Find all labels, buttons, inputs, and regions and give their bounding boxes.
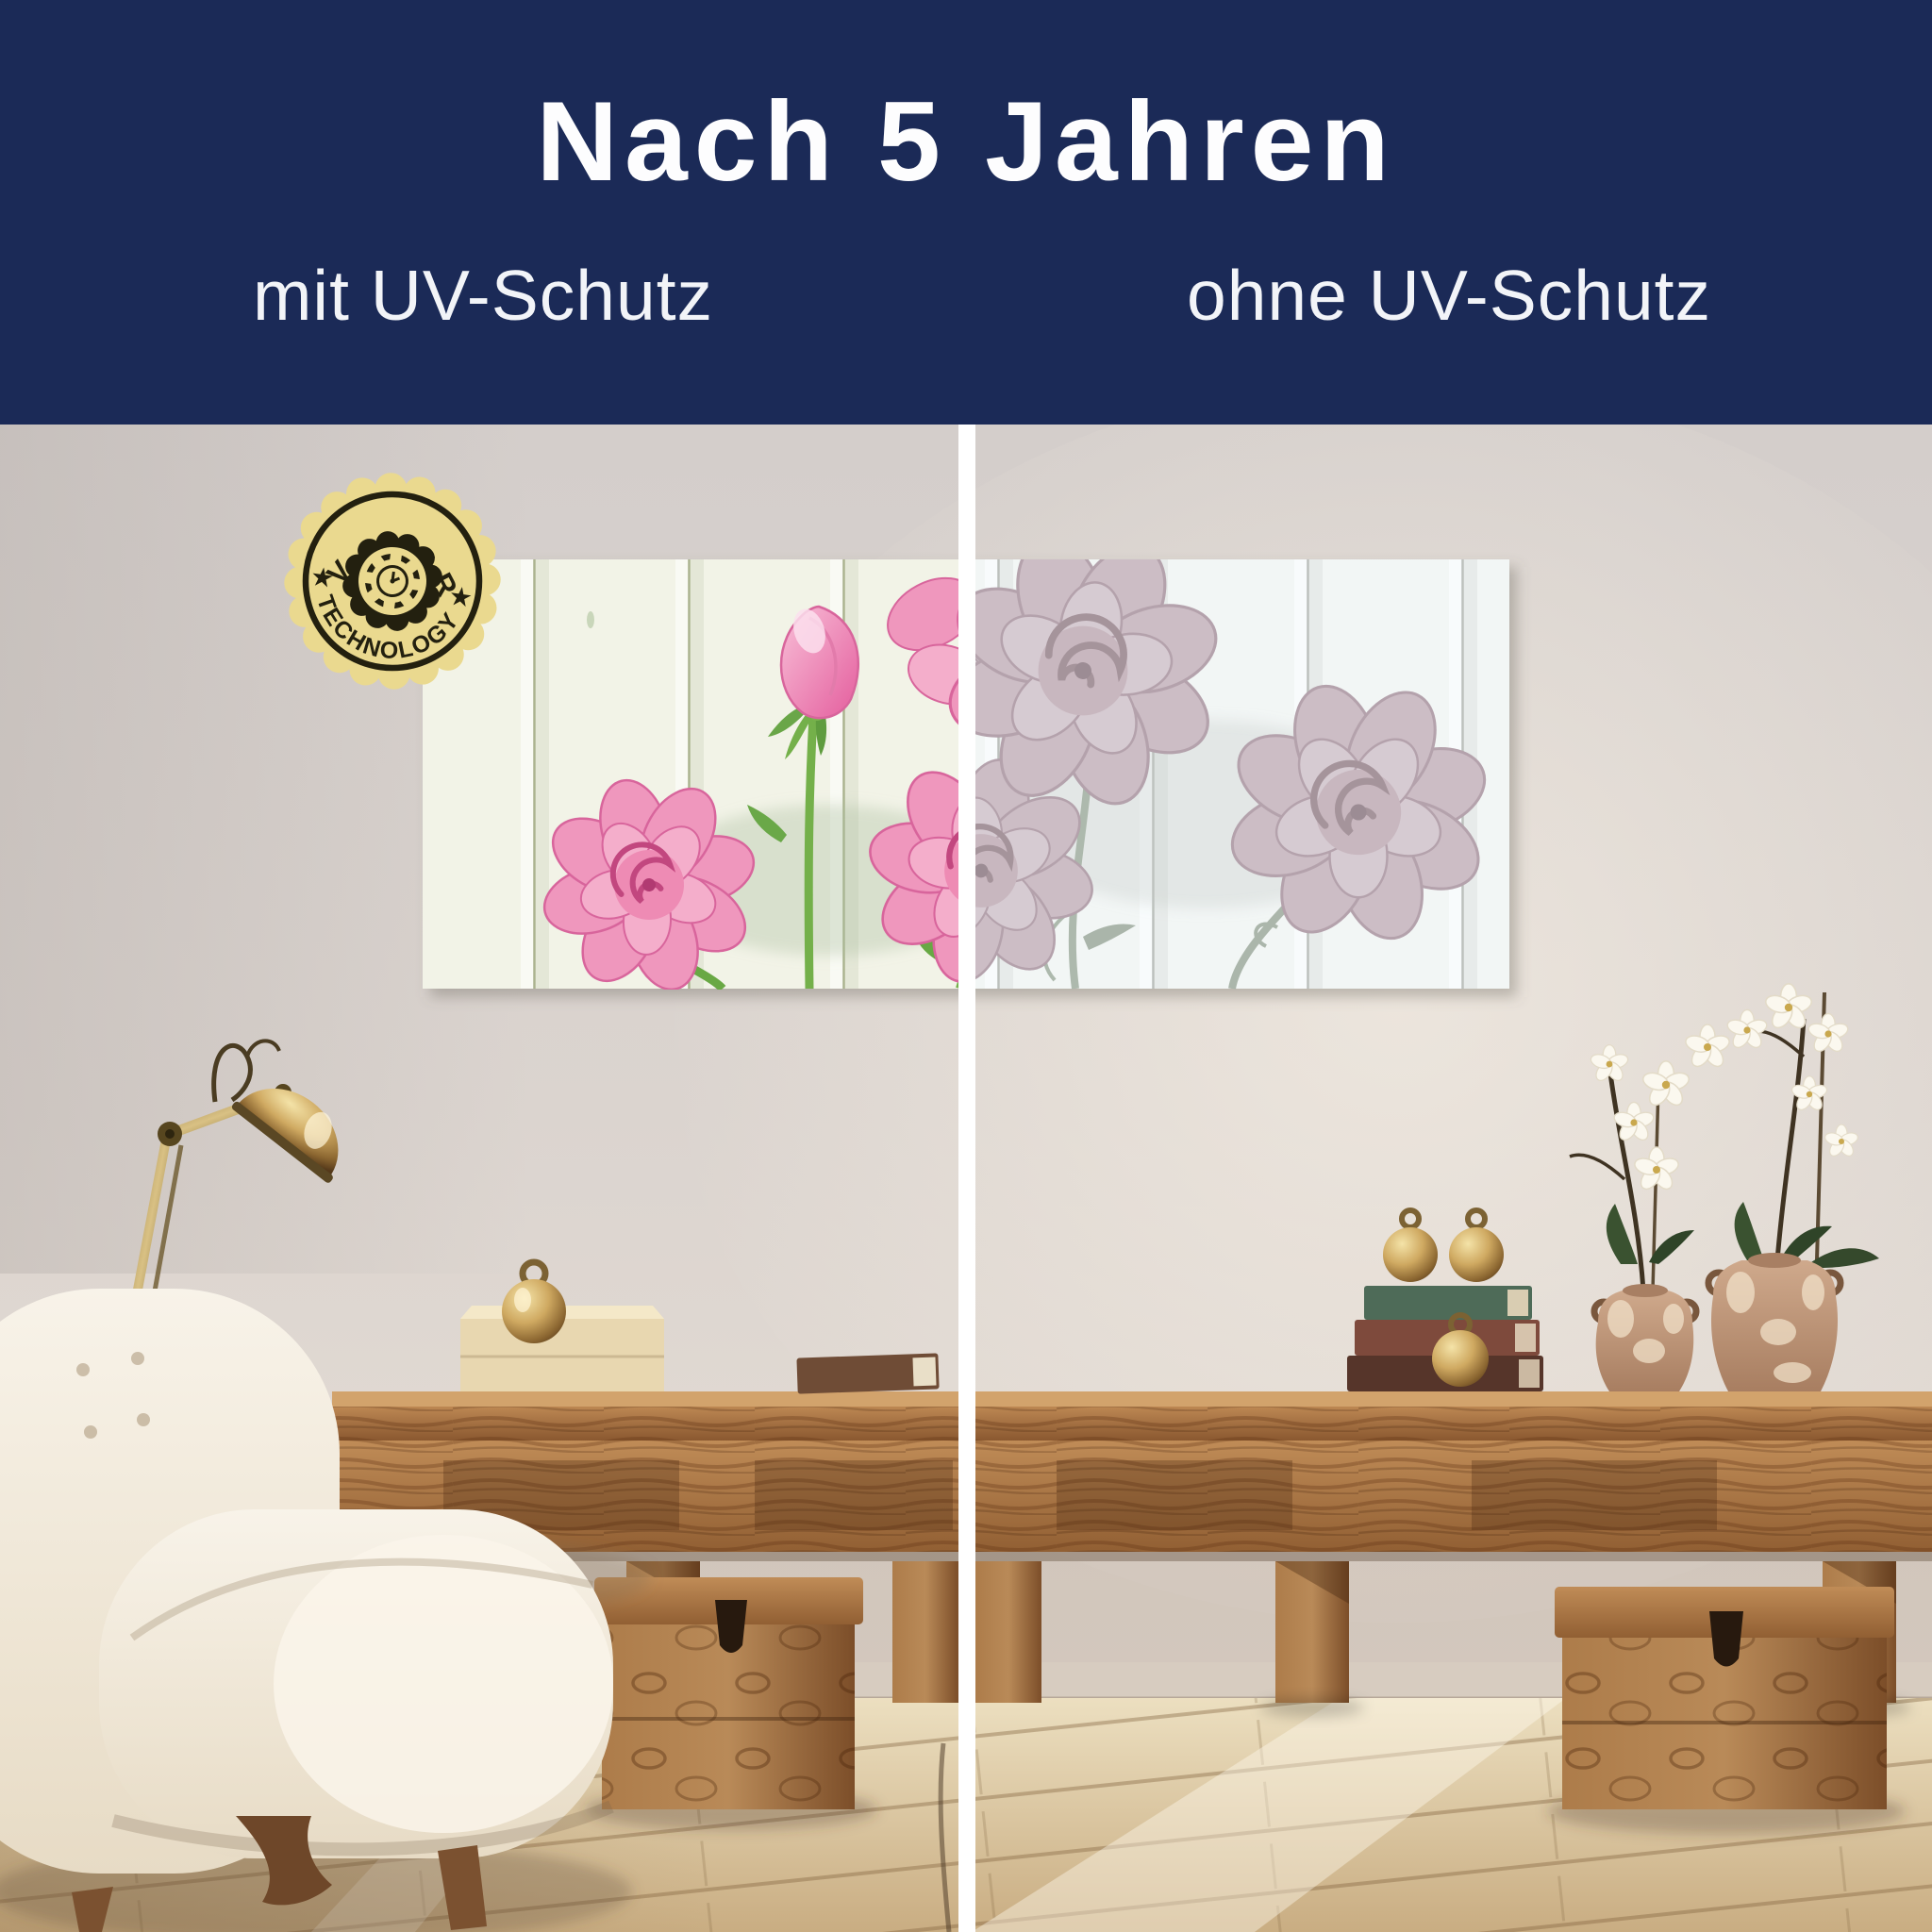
table-drawers (443, 1460, 1717, 1530)
badge-star-left-icon: ★ (308, 561, 336, 593)
table-top (332, 1391, 1932, 1407)
book (796, 1353, 939, 1393)
wooden-chest-right (1547, 1587, 1906, 1834)
brass-bell (502, 1279, 566, 1343)
badge-star-right-icon: ★ (447, 581, 475, 613)
brass-ball (1383, 1227, 1438, 1282)
wooden-chest-left (585, 1577, 877, 1830)
label-with-uv: mit UV-Schutz (0, 257, 966, 335)
brass-ball (1449, 1227, 1504, 1282)
comparison-labels: mit UV-Schutz ohne UV-Schutz (0, 257, 1932, 335)
split-divider (958, 425, 975, 1932)
header-banner: Nach 5 Jahren mit UV-Schutz ohne UV-Schu… (0, 0, 1932, 425)
page-title: Nach 5 Jahren (0, 79, 1932, 204)
room-scene-svg: UV-GUARD TECHNOLOGY ★ ★ (0, 425, 1932, 1932)
label-without-uv: ohne UV-Schutz (966, 257, 1932, 335)
chest-strap (715, 1600, 747, 1653)
chest-strap (1709, 1611, 1743, 1667)
brass-bell-small (1432, 1330, 1489, 1387)
product-comparison-image: Nach 5 Jahren mit UV-Schutz ohne UV-Schu… (0, 0, 1932, 1932)
room-scene: UV-GUARD TECHNOLOGY ★ ★ (0, 425, 1932, 1932)
